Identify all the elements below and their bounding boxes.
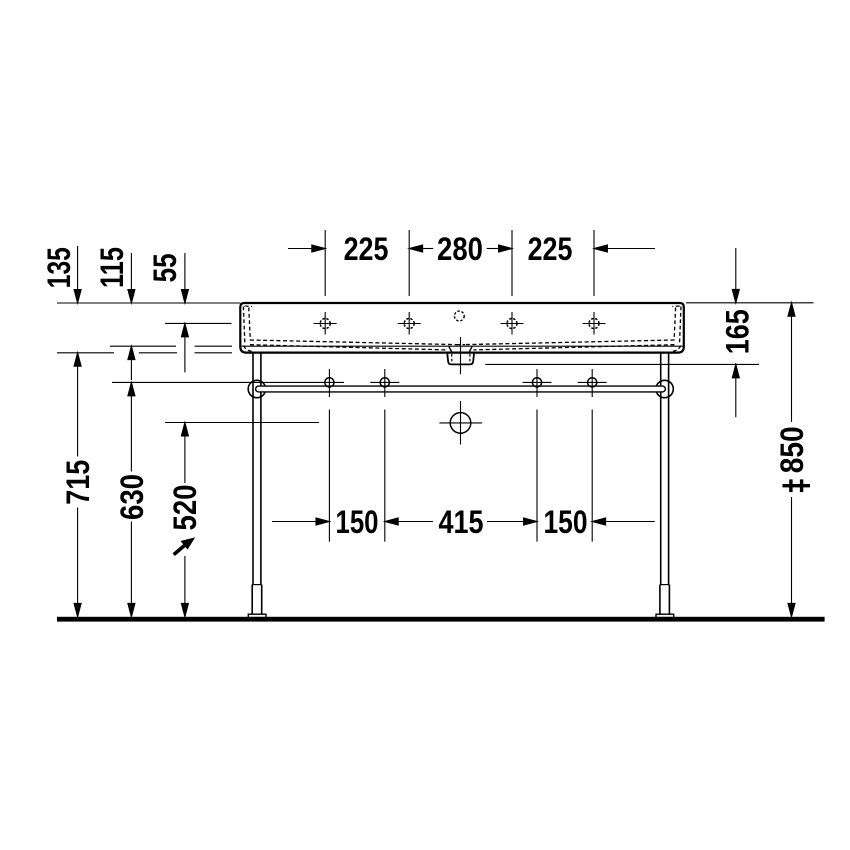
svg-text:165: 165: [720, 309, 756, 354]
svg-text:225: 225: [528, 231, 573, 267]
svg-text:415: 415: [439, 504, 484, 540]
svg-text:135: 135: [41, 247, 77, 288]
svg-text:280: 280: [437, 231, 483, 267]
svg-text:150: 150: [336, 504, 379, 540]
svg-text:55: 55: [147, 253, 183, 282]
svg-text:520: 520: [167, 485, 203, 531]
svg-text:225: 225: [344, 231, 389, 267]
svg-text:115: 115: [94, 247, 130, 288]
svg-text:850: 850: [774, 426, 810, 473]
svg-text:715: 715: [60, 460, 96, 505]
svg-text:630: 630: [114, 474, 150, 520]
svg-text:150: 150: [544, 504, 588, 540]
